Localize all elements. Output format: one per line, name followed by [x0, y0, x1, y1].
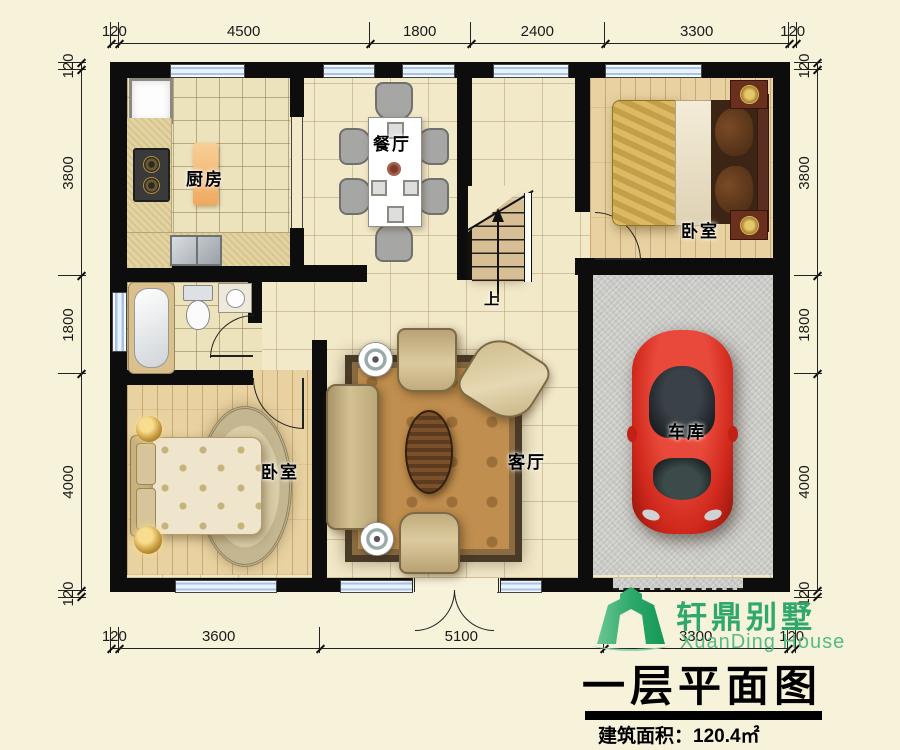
dining-label: 餐厅 [373, 130, 411, 155]
bed-pillow [715, 166, 753, 214]
bedroom-top-door-leaf [595, 258, 640, 260]
dimension-segment: 4000 [794, 373, 822, 589]
entrance-door-left-swing [415, 590, 455, 631]
sofa [326, 384, 379, 530]
table-centerpiece [387, 162, 401, 176]
nightstand-ornament [740, 85, 759, 104]
brand-name-en: XuanDing House [680, 631, 845, 654]
car-headlight [641, 507, 661, 522]
dining-chair [339, 128, 371, 165]
dimension-label: 5100 [445, 628, 478, 645]
window [497, 580, 542, 593]
plan-title: 一层平面图 [582, 652, 822, 714]
car-mirror [627, 426, 637, 442]
nightstand-lamp [136, 416, 162, 442]
toilet-tank [183, 285, 213, 301]
dimension-segment: 1800 [369, 22, 470, 48]
window [605, 64, 702, 78]
building-area-text: 建筑面积：120.4㎡ [598, 721, 760, 748]
dimension-label: 3300 [680, 23, 713, 40]
wall [290, 78, 304, 117]
dimension-chain-right: 120380018004000120 [794, 62, 822, 592]
dimension-label: 3800 [60, 156, 77, 189]
basin-bowl [226, 289, 245, 308]
dimension-segment: 2400 [470, 22, 604, 48]
wall [578, 260, 593, 578]
dimension-label: 3600 [202, 628, 235, 645]
stairs-up-arrow-head [492, 208, 504, 222]
dimension-label: 120 [780, 23, 805, 40]
bedroom-top-label: 卧室 [681, 217, 719, 242]
dimension-segment: 3300 [604, 22, 788, 48]
window [493, 64, 569, 78]
armchair [397, 328, 457, 392]
dimension-label: 1800 [796, 308, 813, 341]
wall [312, 340, 327, 578]
dimension-label: 4500 [227, 23, 260, 40]
xuanding-logo-icon [586, 586, 676, 652]
window [175, 580, 277, 593]
bed-pillow-zone [711, 100, 757, 224]
title-divider-bar [585, 711, 822, 720]
dimension-segment: 120 [794, 62, 822, 69]
dimension-segment: 5100 [319, 627, 603, 653]
living-label: 客厅 [508, 448, 546, 473]
sink-divider [196, 237, 198, 264]
car-mirror [728, 426, 738, 442]
dining-chair [339, 178, 371, 215]
dimension-segment: 4000 [58, 373, 86, 589]
bathtub [128, 282, 175, 374]
dimension-chain-top: 1204500180024003300120 [110, 22, 790, 48]
bathtub-basin [134, 288, 169, 368]
entrance-door-right-swing [454, 590, 494, 631]
dimension-label: 4000 [60, 465, 77, 498]
nightstand [730, 80, 768, 109]
dining-chair [375, 82, 413, 120]
stairs-up-label: 上 [484, 288, 501, 309]
window [340, 580, 413, 593]
stove-burner [143, 156, 160, 173]
bathroom-door-leaf [210, 355, 253, 357]
side-table [358, 342, 393, 377]
place-setting [403, 180, 419, 196]
bedroom-bottom-label: 卧室 [261, 458, 299, 483]
wall [773, 62, 790, 592]
side-table [360, 522, 394, 556]
bed-blanket-gold [612, 100, 677, 226]
wall [457, 62, 472, 280]
wall [575, 62, 590, 212]
window [323, 64, 375, 78]
kitchen-sink [170, 235, 222, 266]
car-headlight [703, 507, 723, 522]
dimension-label: 1800 [60, 308, 77, 341]
stairs-stringer [524, 193, 532, 282]
dimension-segment: 1800 [794, 275, 822, 373]
garage-label: 车库 [668, 418, 706, 443]
kitchen-pass-through [291, 117, 303, 228]
bed-pillow [715, 108, 753, 156]
dimension-segment: 3800 [794, 69, 822, 275]
bed-blanket [152, 437, 262, 535]
car-windshield [653, 458, 711, 500]
floor-plan: 上 厨房 餐厅 卧室 [110, 62, 790, 592]
place-setting [371, 180, 387, 196]
dimension-segment: 1800 [58, 275, 86, 373]
bed-pillow [136, 443, 156, 485]
dimension-label: 3800 [796, 156, 813, 189]
window [402, 64, 455, 78]
nightstand-ornament [740, 216, 759, 235]
stove [133, 148, 170, 202]
dimension-segment: 3600 [118, 627, 319, 653]
place-setting [387, 206, 404, 223]
coffee-table [405, 410, 453, 494]
dimension-label: 1800 [403, 23, 436, 40]
dimension-segment: 120 [58, 62, 86, 69]
dimension-segment: 120 [58, 590, 86, 598]
dining-chair [375, 224, 413, 262]
window [170, 64, 245, 78]
dimension-chain-left: 120380018004000120 [58, 62, 86, 592]
bedroom-bottom-door-leaf [302, 378, 304, 428]
dimension-segment: 3800 [58, 69, 86, 275]
dimension-label: 120 [60, 581, 77, 606]
dimension-segment: 120 [788, 22, 797, 48]
bed-sheet [675, 100, 713, 226]
bed-pillow [136, 488, 156, 530]
nightstand [730, 210, 768, 240]
dimension-label: 4000 [796, 465, 813, 498]
stove-burner [143, 177, 160, 194]
armchair [399, 512, 460, 574]
bathroom-basin [218, 283, 252, 313]
window [112, 292, 127, 352]
dimension-label: 2400 [521, 23, 554, 40]
kitchen-label: 厨房 [186, 165, 224, 190]
nightstand-lamp [134, 526, 162, 554]
dimension-segment: 4500 [118, 22, 369, 48]
toilet-bowl [186, 300, 210, 330]
